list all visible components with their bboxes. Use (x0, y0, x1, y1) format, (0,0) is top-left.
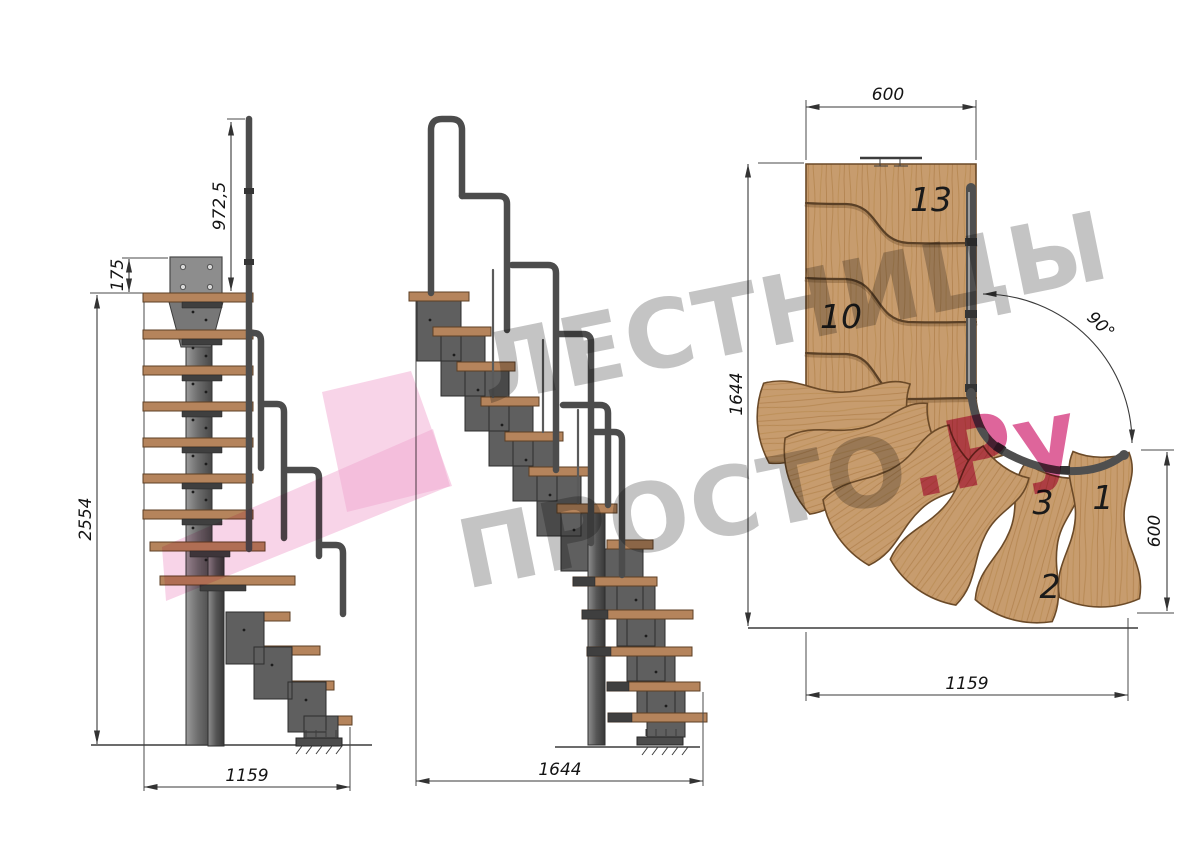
handrail-loop (431, 119, 462, 293)
rail-segment (321, 545, 343, 614)
mounting-plate (170, 257, 222, 295)
plan-view: 13 10 3 1 2 600 1644 (727, 85, 1174, 701)
dim-plan-right: 600 (1145, 515, 1165, 547)
post-collar (244, 188, 254, 194)
dim-total-height: 2554 (76, 497, 96, 540)
dim-handrail-height: 972,5 (210, 182, 230, 231)
side-view-a: 972,5 175 2554 1159 (76, 119, 372, 791)
post-collar (244, 259, 254, 265)
staircase-technical-drawing: 972,5 175 2554 1159 (0, 0, 1200, 849)
rail-segment (462, 196, 507, 330)
dim-bracket-height: 175 (108, 259, 128, 291)
rail-segment (252, 333, 261, 468)
step-label-2: 2 (1040, 567, 1061, 606)
drawing-canvas: 972,5 175 2554 1159 (0, 0, 1200, 849)
dim-plan-bottom: 1159 (945, 674, 988, 694)
foot-flange (296, 738, 342, 746)
dim-plan-top: 600 (872, 85, 904, 105)
dim-run-b: 1644 (538, 760, 581, 780)
lower-spine-modules (226, 612, 338, 738)
dim-plan-left: 1644 (727, 372, 747, 415)
side-view-b: 1644 (409, 119, 707, 786)
dim-run-a: 1159 (225, 766, 268, 786)
foot-flange (637, 737, 683, 745)
step-label-1: 1 (1093, 478, 1114, 517)
step-label-13: 13 (910, 180, 952, 219)
